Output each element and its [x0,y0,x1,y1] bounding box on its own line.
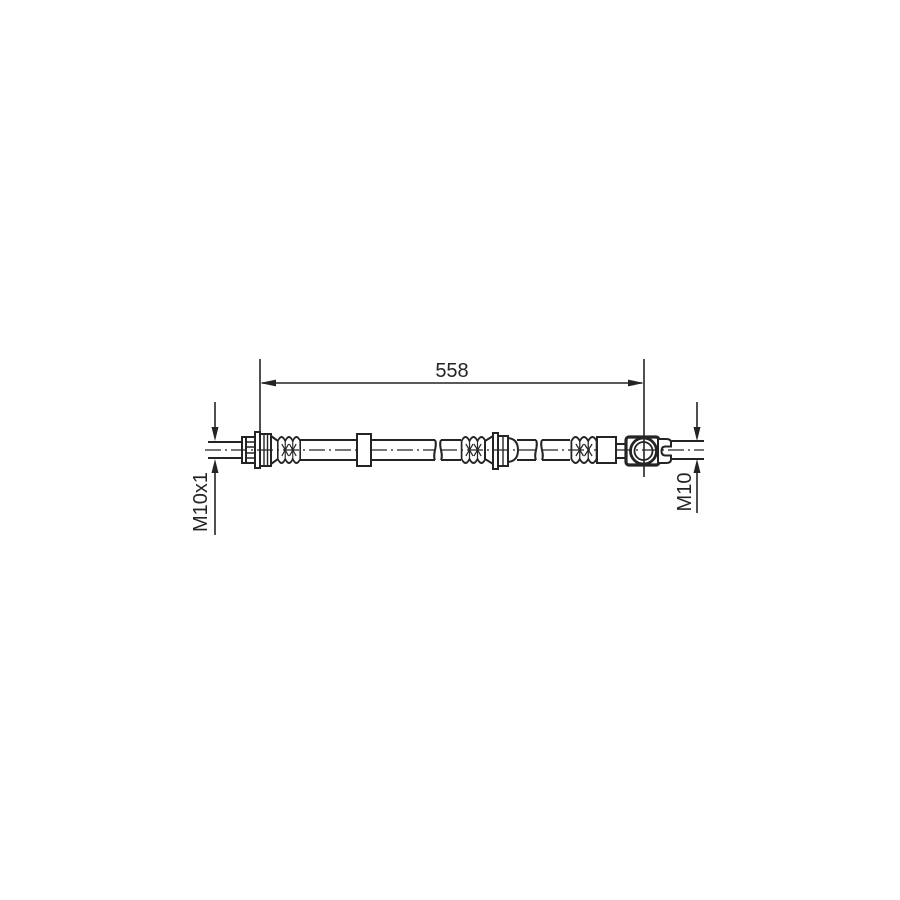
arrowhead-down-icon [212,427,219,441]
break-cap [535,440,537,460]
mounting-grommet [357,434,371,466]
banjo-fitting [626,437,704,465]
dim-arrowhead-right [628,380,644,387]
flange-collar [498,436,508,466]
thread-label-left: M10x1 [190,472,212,532]
hose-assembly [205,432,704,469]
brake-hose-technical-drawing: 558 M10x1 M10 [0,0,900,900]
length-dimension-label: 558 [435,360,468,382]
thread-dimension-left: M10x1 [190,402,219,535]
threaded-stub [246,437,255,463]
fork-clip [658,439,671,463]
thread-dimension-right: M10 [674,402,701,513]
arrowhead-up-icon [694,459,701,473]
thread-label-right: M10 [674,473,696,512]
product-drawing-canvas: 558 M10x1 M10 [0,0,900,900]
dim-arrowhead-left [260,380,276,387]
arrowhead-up-icon [212,459,219,473]
end-sleeve [597,437,616,463]
arrowhead-down-icon [694,427,701,441]
mid-bracket-fitting [462,433,518,469]
